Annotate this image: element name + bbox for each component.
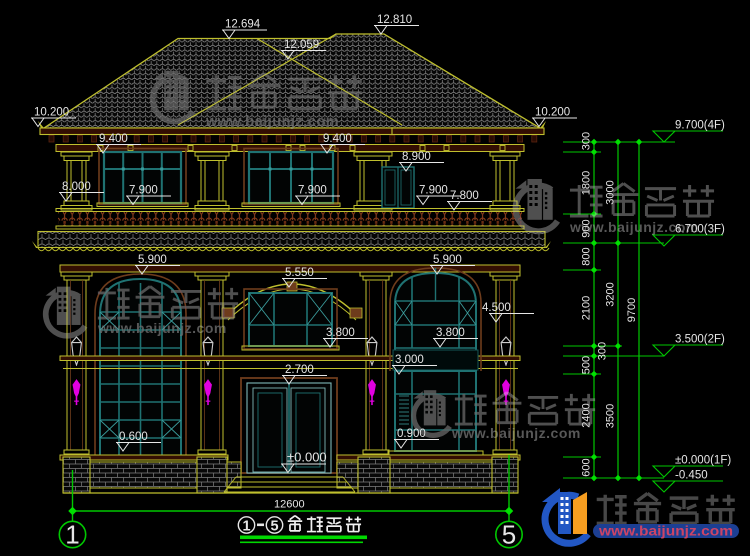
svg-text:±0.000(1F): ±0.000(1F) (675, 455, 731, 467)
svg-text:1: 1 (242, 519, 250, 535)
svg-text:2100: 2100 (581, 296, 593, 320)
svg-text:12.694: 12.694 (225, 19, 261, 31)
svg-text:7.900: 7.900 (129, 185, 158, 197)
svg-text:3.800: 3.800 (436, 327, 465, 339)
svg-text:5.900: 5.900 (433, 254, 462, 266)
svg-text:12600: 12600 (274, 499, 305, 511)
svg-text:600: 600 (581, 458, 593, 476)
svg-text:300: 300 (597, 342, 609, 360)
svg-text:9700: 9700 (626, 298, 638, 322)
svg-text:9.700(4F): 9.700(4F) (675, 120, 725, 132)
svg-text:5.900: 5.900 (138, 254, 167, 266)
svg-text:12.059: 12.059 (284, 39, 319, 51)
svg-text:3.000: 3.000 (395, 354, 424, 366)
svg-text:12.810: 12.810 (377, 14, 412, 26)
svg-text:9.400: 9.400 (323, 133, 352, 145)
svg-text:±0.000: ±0.000 (287, 450, 327, 465)
svg-text:9.400: 9.400 (99, 133, 128, 145)
svg-text:3500: 3500 (605, 404, 617, 428)
svg-text:3200: 3200 (605, 282, 617, 306)
svg-text:800: 800 (581, 247, 593, 265)
svg-text:7.800: 7.800 (450, 190, 479, 202)
svg-text:3.500(2F): 3.500(2F) (675, 334, 725, 346)
svg-text:1: 1 (65, 520, 79, 550)
svg-text:2.700: 2.700 (285, 364, 314, 376)
svg-text:10.200: 10.200 (535, 107, 570, 119)
svg-text:300: 300 (581, 132, 593, 150)
svg-text:500: 500 (581, 356, 593, 374)
svg-text:7.900: 7.900 (419, 185, 448, 197)
svg-text:www.baijunjz.com: www.baijunjz.com (569, 219, 699, 235)
svg-text:8.900: 8.900 (402, 151, 431, 163)
svg-text:4.500: 4.500 (482, 302, 511, 314)
svg-text:5: 5 (502, 520, 516, 550)
svg-text:10.200: 10.200 (34, 107, 69, 119)
svg-text:5: 5 (270, 519, 278, 535)
svg-text:8.000: 8.000 (62, 181, 91, 193)
svg-text:www.baijunjz.com: www.baijunjz.com (205, 114, 339, 130)
svg-text:0.600: 0.600 (119, 431, 148, 443)
svg-text:5.550: 5.550 (285, 267, 314, 279)
svg-text:3.800: 3.800 (326, 327, 355, 339)
svg-text:7.900: 7.900 (298, 185, 327, 197)
svg-text:www.baijunjz.com: www.baijunjz.com (451, 425, 581, 441)
svg-text:www.baijunjz.com: www.baijunjz.com (97, 320, 227, 336)
svg-text:-0.450: -0.450 (675, 470, 708, 482)
svg-text:www.baijunjz.com: www.baijunjz.com (598, 524, 733, 539)
